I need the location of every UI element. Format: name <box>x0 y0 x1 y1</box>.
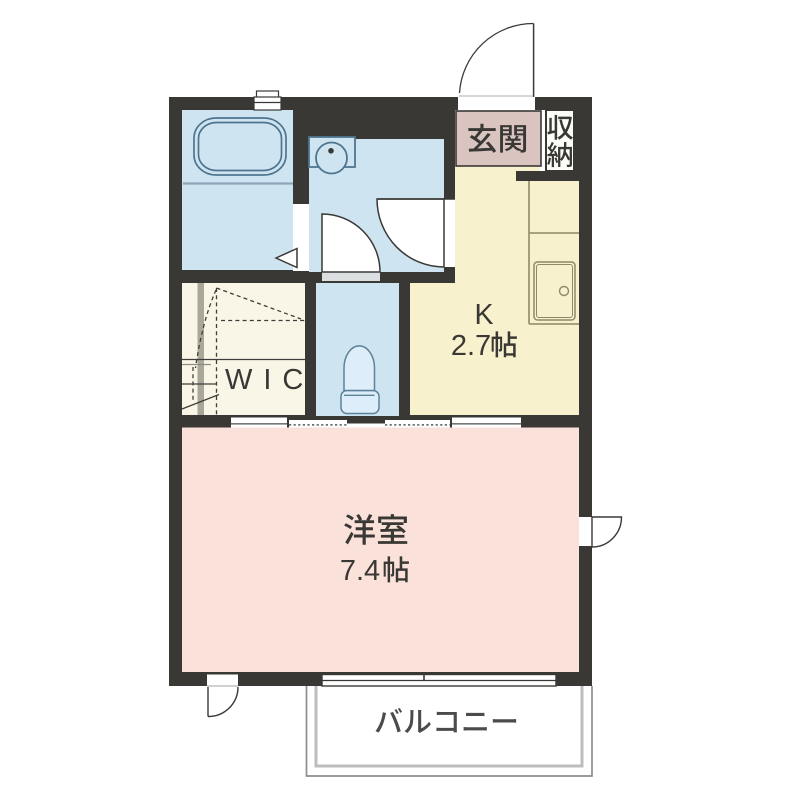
svg-text:K: K <box>474 299 493 331</box>
svg-text:WIC: WIC <box>225 364 314 396</box>
svg-text:2.7: 2.7 <box>451 330 491 362</box>
svg-text:7.4: 7.4 <box>340 555 380 587</box>
